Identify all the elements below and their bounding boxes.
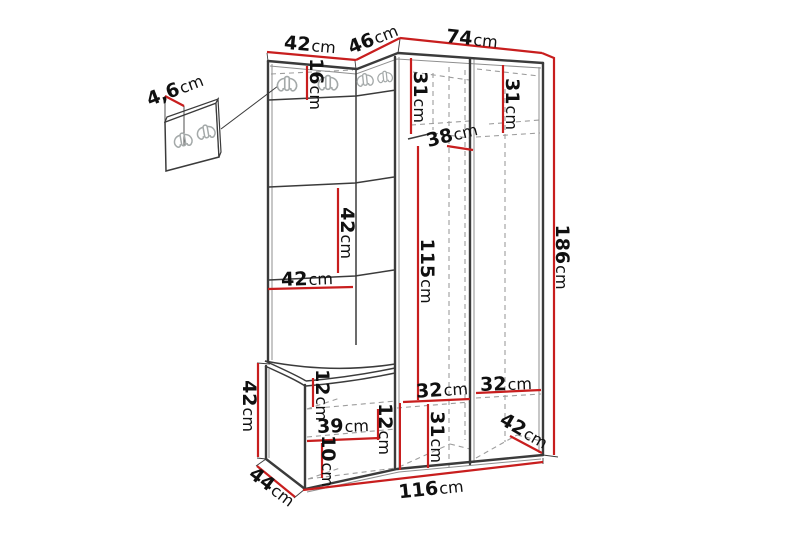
dim-label-middle-section: 115cm	[416, 238, 438, 303]
ext-bench-bottom	[257, 458, 266, 459]
bench-cushion-back	[265, 361, 395, 368]
dim-label-top-corner-width: 46cm	[345, 19, 401, 59]
dim-label-left-column-width: 42cm	[281, 267, 334, 291]
bench-cushion-left-lower	[265, 366, 305, 386]
dim-label-total-width: 116cm	[397, 475, 464, 504]
dim-label-upper-right-compartment: 31cm	[501, 78, 523, 130]
dim-label-bottom-compartment: 31cm	[426, 411, 448, 463]
coat-hook-icon	[377, 71, 393, 83]
dim-label-wall-panel-thickness: 4,6cm	[143, 69, 206, 111]
coat-hook-icon	[356, 73, 373, 87]
dimension-diagram: 4,6cm 42cm 46cm 74cm 16cm 31cm 31cm 38cm…	[0, 0, 800, 533]
left-column-divider-1	[269, 177, 394, 187]
dim-label-bench-height: 42cm	[238, 380, 260, 432]
dim-label-upper-left-compartment: 31cm	[409, 71, 431, 123]
dimension-labels: 4,6cm 42cm 46cm 74cm 16cm 31cm 31cm 38cm…	[143, 19, 573, 511]
dim-label-bench-lower-compartment: 10cm	[317, 435, 339, 487]
dim-label-hook-strip-height: 16cm	[305, 58, 327, 110]
wall-hook-panel	[165, 99, 221, 171]
dim-label-left-panel-section: 42cm	[336, 207, 358, 259]
hidden-lower-shelf-left	[397, 402, 470, 408]
diagram-canvas: 4,6cm 42cm 46cm 74cm 16cm 31cm 31cm 38cm…	[0, 0, 800, 533]
ext-top-left	[267, 53, 268, 61]
bench-left-edge	[266, 366, 305, 489]
ext-top-corner	[398, 39, 400, 53]
hook-strip-bottom	[269, 90, 396, 100]
hidden-shelf-right-front	[476, 133, 540, 137]
dim-label-top-left-width: 42cm	[283, 32, 337, 58]
dim-label-bench-depth: 44cm	[245, 463, 300, 512]
dim-label-bench-right-compartment: 12cm	[374, 403, 396, 455]
dim-label-top-right-width: 74cm	[445, 25, 499, 52]
dim-label-total-height: 186cm	[551, 224, 573, 289]
dim-label-lower-right-compartment: 32cm	[480, 372, 533, 396]
panel-pointer-line	[221, 86, 278, 129]
structure-lines	[221, 69, 433, 386]
dim-label-bench-upper-compartment: 12cm	[311, 369, 333, 421]
coat-hook-icon	[277, 77, 296, 91]
hidden-top-back-right-half	[477, 69, 539, 76]
ext-height-bottom	[543, 455, 558, 457]
